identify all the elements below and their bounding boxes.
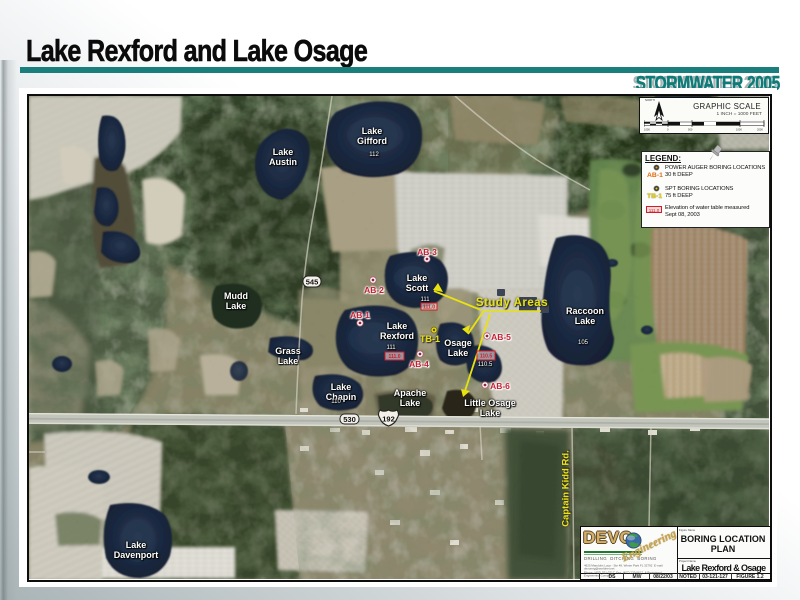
svg-text:500: 500: [688, 128, 693, 132]
svg-text:1000: 1000: [736, 128, 742, 132]
svg-text:1000: 1000: [644, 128, 650, 132]
svg-text:545: 545: [306, 278, 319, 287]
svg-text:111.0: 111.0: [389, 354, 401, 360]
svg-text:0: 0: [667, 128, 669, 132]
svg-text:192: 192: [382, 415, 395, 424]
svg-text:110.5: 110.5: [480, 354, 492, 360]
svg-text:2000: 2000: [757, 128, 763, 132]
svg-text:111.0: 111.0: [423, 305, 435, 311]
svg-text:530: 530: [343, 415, 356, 424]
